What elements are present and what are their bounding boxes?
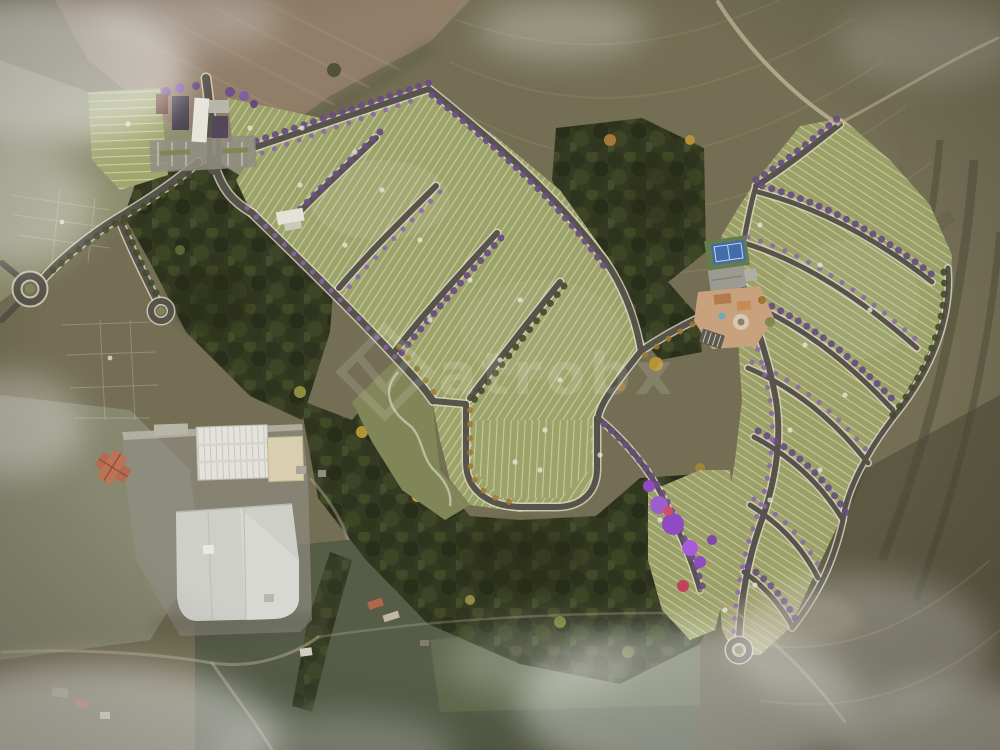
aerial-scene: atrobx xyxy=(0,0,1000,750)
vignette-overlay xyxy=(0,0,1000,750)
aerial-masterplan-image: atrobx xyxy=(0,0,1000,750)
